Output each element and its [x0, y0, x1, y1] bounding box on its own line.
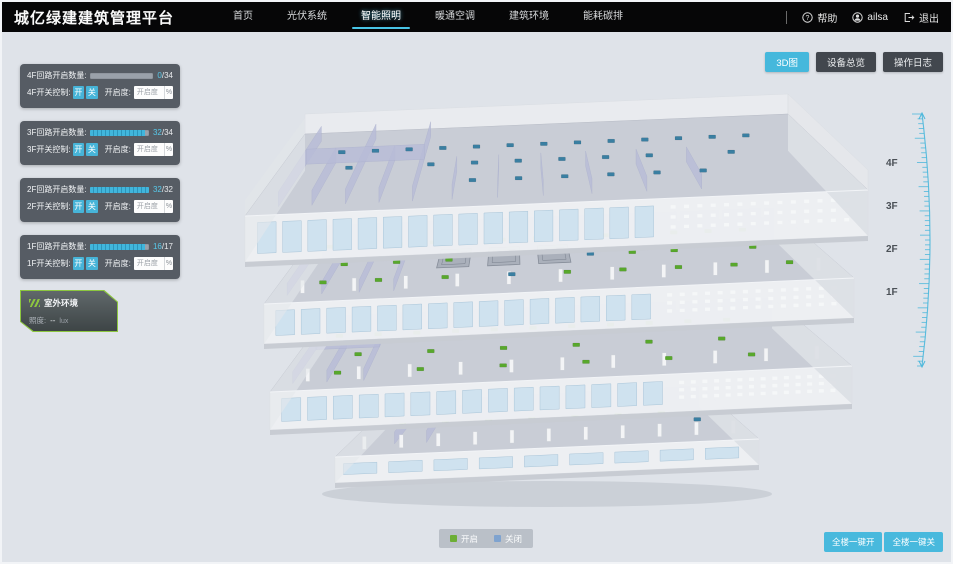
outdoor-env-title: 室外环境	[44, 297, 78, 309]
nav-item-hvac[interactable]: 暖通空调	[418, 2, 492, 32]
floor-select-3f[interactable]: 3F	[886, 201, 910, 212]
light-indicator	[728, 150, 735, 154]
openness-input[interactable]	[134, 143, 164, 156]
openness-input[interactable]	[134, 200, 164, 213]
help-label: 帮助	[817, 10, 837, 25]
switch-control-label: 1F开关控制:	[27, 258, 71, 269]
light-indicator	[573, 343, 580, 347]
all-floors-off-button[interactable]: 全楼一键关	[884, 532, 943, 552]
light-indicator	[345, 166, 352, 170]
top-header: 城亿绿建建筑管理平台 首页 光伏系统 智能照明 暖通空调 建筑环境 能耗碳排 ?…	[2, 2, 951, 32]
light-indicator	[574, 141, 581, 145]
circuit-progress-bar	[90, 187, 149, 193]
illuminance-value: --	[50, 316, 55, 325]
light-indicator	[515, 159, 522, 163]
light-indicator	[439, 146, 446, 150]
light-indicator	[406, 148, 413, 152]
nav-item-smart-lighting[interactable]: 智能照明	[344, 2, 418, 32]
light-indicator	[641, 138, 648, 142]
light-status-legend: 开启 关闭	[439, 529, 533, 548]
circuit-count-label: 4F回路开启数量:	[27, 70, 87, 81]
percent-unit: %	[164, 143, 173, 156]
light-indicator	[515, 176, 522, 180]
percent-unit: %	[164, 257, 173, 270]
switch-on-button[interactable]: 开	[73, 143, 85, 156]
all-floors-on-button[interactable]: 全楼一键开	[824, 532, 883, 552]
light-indicator	[700, 169, 707, 173]
light-indicator	[675, 265, 682, 269]
bulk-actions: 全楼一键开 全楼一键关	[824, 532, 943, 552]
nav-item-energy-carbon[interactable]: 能耗碳排	[566, 2, 640, 32]
light-indicator	[694, 418, 701, 422]
switch-control-label: 4F开关控制:	[27, 87, 71, 98]
light-indicator	[786, 260, 793, 264]
light-indicator	[564, 270, 571, 274]
light-indicator	[742, 134, 749, 138]
light-indicator	[718, 337, 725, 341]
light-indicator	[508, 272, 515, 276]
main-nav: 首页 光伏系统 智能照明 暖通空调 建筑环境 能耗碳排	[216, 2, 640, 32]
legend-off-swatch	[494, 535, 501, 542]
light-indicator	[442, 275, 449, 279]
light-indicator	[654, 171, 661, 175]
light-indicator	[500, 346, 507, 350]
light-indicator	[709, 135, 716, 139]
illuminance-unit: lux	[59, 318, 68, 325]
illuminance-label: 照度:	[29, 315, 46, 326]
circuit-count-value: 32/32	[153, 185, 173, 194]
openness-label: 开启度:	[105, 201, 131, 212]
switch-on-button[interactable]: 开	[73, 86, 85, 99]
floor-panel-3f: 3F回路开启数量: 32/34 3F开关控制: 开 关 开启度: %	[20, 121, 180, 165]
light-indicator	[561, 174, 568, 178]
building-floor-4F	[245, 94, 868, 267]
light-indicator	[334, 371, 341, 375]
floor-panel-4f: 4F回路开启数量: 0/34 4F开关控制: 开 关 开启度: %	[20, 64, 180, 108]
logout-label: 退出	[919, 10, 939, 25]
light-indicator	[665, 356, 672, 360]
circuit-count-label: 2F回路开启数量:	[27, 184, 87, 195]
circuit-count-label: 1F回路开启数量:	[27, 241, 87, 252]
legend-on-label: 开启	[461, 533, 478, 545]
help-link[interactable]: ? 帮助	[802, 10, 837, 25]
app-title: 城亿绿建建筑管理平台	[14, 7, 174, 28]
switch-off-button[interactable]: 关	[86, 257, 98, 270]
light-indicator	[748, 353, 755, 357]
floor-panel-1f: 1F回路开启数量: 16/17 1F开关控制: 开 关 开启度: %	[20, 235, 180, 279]
light-indicator	[507, 143, 514, 147]
svg-text:?: ?	[806, 15, 810, 22]
user-icon	[852, 12, 863, 23]
switch-control-label: 3F开关控制:	[27, 144, 71, 155]
floor-select-2f[interactable]: 2F	[886, 244, 910, 255]
openness-label: 开启度:	[105, 87, 131, 98]
percent-unit: %	[164, 86, 173, 99]
floor-select-4f[interactable]: 4F	[886, 158, 910, 169]
header-divider	[786, 11, 787, 24]
operation-log-button[interactable]: 操作日志	[883, 52, 943, 72]
username: ailsa	[867, 12, 888, 23]
floor-panel-2f: 2F回路开启数量: 32/32 2F开关控制: 开 关 开启度: %	[20, 178, 180, 222]
light-indicator	[471, 161, 478, 165]
light-indicator	[473, 145, 480, 149]
percent-unit: %	[164, 200, 173, 213]
circuit-progress-bar	[90, 130, 149, 136]
openness-input[interactable]	[134, 86, 164, 99]
circuit-count-value: 0/34	[157, 71, 173, 80]
circuit-count-value: 32/34	[153, 128, 173, 137]
app-window: 城亿绿建建筑管理平台 首页 光伏系统 智能照明 暖通空调 建筑环境 能耗碳排 ?…	[0, 0, 953, 564]
switch-off-button[interactable]: 关	[86, 86, 98, 99]
light-indicator	[602, 155, 609, 159]
floor-select-1f[interactable]: 1F	[886, 287, 910, 298]
user-link[interactable]: ailsa	[852, 12, 888, 23]
light-indicator	[582, 360, 589, 364]
header-user-area: ? 帮助 ailsa 退出	[786, 10, 939, 25]
light-indicator	[319, 281, 326, 285]
view-3d-button[interactable]: 3D图	[765, 52, 809, 72]
nav-item-home[interactable]: 首页	[216, 2, 270, 32]
sunlight-icon	[29, 299, 40, 307]
light-indicator	[372, 149, 379, 153]
light-indicator	[645, 340, 652, 344]
light-indicator	[375, 278, 382, 282]
light-indicator	[338, 150, 345, 154]
light-indicator	[469, 178, 476, 182]
openness-label: 开启度:	[105, 258, 131, 269]
circuit-count-value: 16/17	[153, 242, 173, 251]
circuit-progress-bar	[90, 73, 154, 79]
circuit-count-label: 3F回路开启数量:	[27, 127, 87, 138]
logout-icon	[903, 12, 915, 23]
light-indicator	[675, 136, 682, 140]
light-indicator	[355, 352, 362, 356]
legend-on-item: 开启	[450, 533, 478, 545]
circuit-progress-bar	[90, 244, 149, 250]
legend-off-item: 关闭	[494, 533, 522, 545]
help-icon: ?	[802, 12, 813, 23]
outdoor-env-panel: 室外环境 照度: -- lux	[20, 290, 118, 332]
light-indicator	[608, 139, 615, 143]
light-indicator	[427, 163, 434, 167]
switch-off-button[interactable]: 关	[86, 143, 98, 156]
legend-off-label: 关闭	[505, 533, 522, 545]
openness-label: 开启度:	[105, 144, 131, 155]
light-indicator	[646, 153, 653, 157]
nav-item-pv-system[interactable]: 光伏系统	[270, 2, 344, 32]
switch-on-button[interactable]: 开	[73, 200, 85, 213]
light-indicator	[417, 367, 424, 371]
device-overview-button[interactable]: 设备总览	[816, 52, 876, 72]
light-indicator	[607, 173, 614, 177]
light-indicator	[731, 263, 738, 267]
light-indicator	[540, 142, 547, 146]
switch-off-button[interactable]: 关	[86, 200, 98, 213]
light-indicator	[619, 268, 626, 272]
light-indicator	[427, 349, 434, 353]
switch-control-label: 2F开关控制:	[27, 201, 71, 212]
openness-input[interactable]	[134, 257, 164, 270]
switch-on-button[interactable]: 开	[73, 257, 85, 270]
nav-item-building-env[interactable]: 建筑环境	[492, 2, 566, 32]
legend-on-swatch	[450, 535, 457, 542]
logout-link[interactable]: 退出	[903, 10, 939, 25]
floor-zoom-ruler[interactable]	[912, 113, 930, 367]
light-indicator	[500, 364, 507, 368]
light-indicator	[558, 157, 565, 161]
view-toolbar: 3D图 设备总览 操作日志	[765, 52, 943, 72]
